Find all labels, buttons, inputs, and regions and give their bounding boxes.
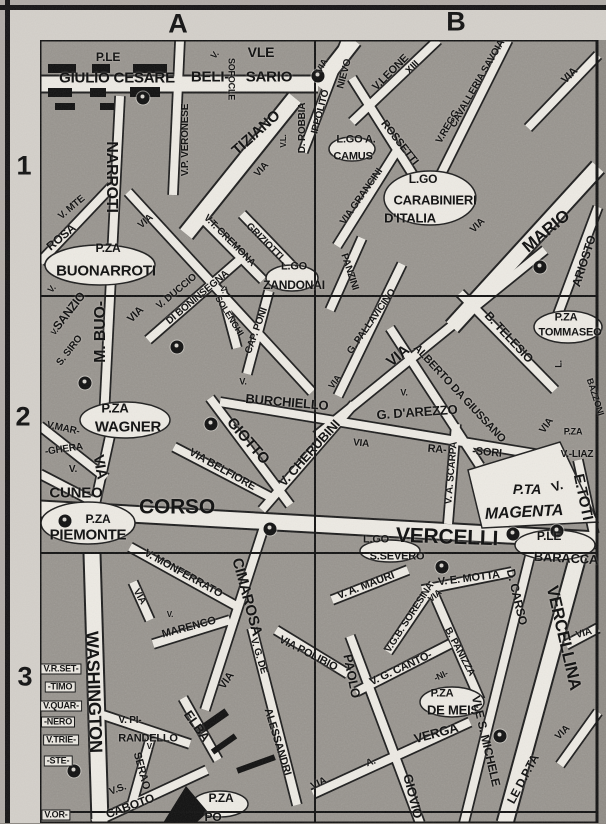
map-label: -TIMO xyxy=(45,682,76,693)
map-label: V. xyxy=(147,743,153,751)
map-label: P.TA xyxy=(513,482,541,496)
map-label: V. xyxy=(239,378,246,387)
transit-stop-icon xyxy=(436,561,449,574)
map-label: RA- xyxy=(427,444,447,457)
map-label: NARROTI xyxy=(103,141,119,212)
map-label: L.GO A. xyxy=(336,135,375,146)
map-label: D. ROBBIA xyxy=(298,103,308,153)
map-label: PO xyxy=(205,811,222,823)
map-page: A B 1 2 3 xyxy=(0,0,606,823)
map-label: BELI- xyxy=(191,70,229,85)
map-label: V.OR- xyxy=(41,810,70,821)
map-label: WAGNER xyxy=(95,420,161,435)
map-label: -NERO xyxy=(41,717,75,728)
grid-margin-top xyxy=(10,10,606,40)
map-label: V.P. VERONESE xyxy=(181,104,191,176)
grid-column-label-b: B xyxy=(446,7,466,38)
map-label: -STE- xyxy=(44,756,73,767)
transit-stop-icon xyxy=(534,261,547,274)
map-label: GIULIO CESARE xyxy=(59,71,175,86)
transit-stop-icon xyxy=(264,523,277,536)
map-label: L.GO xyxy=(409,173,438,185)
map-label: M. BUO- xyxy=(93,301,109,363)
map-label: P.ZA xyxy=(555,313,578,324)
map-label: VIA xyxy=(353,438,370,449)
map-label: P.ZA xyxy=(86,513,111,525)
map-label: BUONARROTI xyxy=(56,264,156,279)
map-label: L.GO xyxy=(281,262,307,273)
grid-row-label-3: 3 xyxy=(17,662,32,693)
map-label: P.ZA xyxy=(101,402,128,415)
map-label: TOMMASEO xyxy=(539,328,602,339)
map-label: V.-LIAZ xyxy=(561,450,594,460)
map-label: P.LE xyxy=(537,530,561,542)
map-label: V. PI- xyxy=(119,716,142,726)
map-label: V. xyxy=(167,611,173,619)
map-label: VLE xyxy=(248,45,275,59)
map-label: V.TRIE- xyxy=(43,735,79,746)
map-label: L. xyxy=(555,360,564,368)
map-label: CORSO xyxy=(139,497,215,518)
map-label: CARABINIERI xyxy=(393,194,476,207)
transit-stop-icon xyxy=(494,730,507,743)
map-label: V.QUAR- xyxy=(40,701,82,712)
map-label: D'ITALIA xyxy=(384,212,436,225)
transit-stop-icon xyxy=(205,418,218,431)
map-label: P.ZA xyxy=(209,792,234,804)
map-label: P.ZA xyxy=(564,428,583,437)
map-label: BARACCA xyxy=(534,550,599,566)
map-label: V.L. xyxy=(280,134,288,147)
transit-stop-icon xyxy=(137,92,150,105)
map-label: V.R.SET- xyxy=(40,664,81,675)
map-label: SOFOCLE xyxy=(227,58,236,100)
map-label: L.GO xyxy=(363,535,389,546)
transit-stop-icon xyxy=(79,377,92,390)
map-label: V. xyxy=(69,465,77,475)
map-label: V. xyxy=(400,389,407,398)
map-label: P.ZA xyxy=(96,242,121,254)
transit-stop-icon xyxy=(171,341,184,354)
map-label: S.SEVERO xyxy=(370,552,425,563)
map-label: P.LE xyxy=(96,51,120,63)
map-label: SARIO xyxy=(246,70,293,85)
map-label: P.ZA xyxy=(431,689,454,700)
map-canvas: P.LEGIULIO CESAREVLEBELI-SARIOV.SOFOCLEV… xyxy=(40,40,606,823)
grid-row-label-1: 1 xyxy=(16,151,31,182)
map-label: PIEMONTE xyxy=(50,528,127,543)
map-label: ZANDONAI xyxy=(263,279,325,291)
map-label: VIA xyxy=(90,454,109,481)
map-label: WASHINGTON xyxy=(83,631,105,753)
map-label: VERCELLI xyxy=(396,525,499,550)
map-label: CUNEO xyxy=(49,486,102,501)
map-label: CAMUS xyxy=(333,152,372,163)
grid-column-label-a: A xyxy=(168,9,188,40)
transit-stop-icon xyxy=(507,528,520,541)
grid-row-label-2: 2 xyxy=(15,402,30,433)
